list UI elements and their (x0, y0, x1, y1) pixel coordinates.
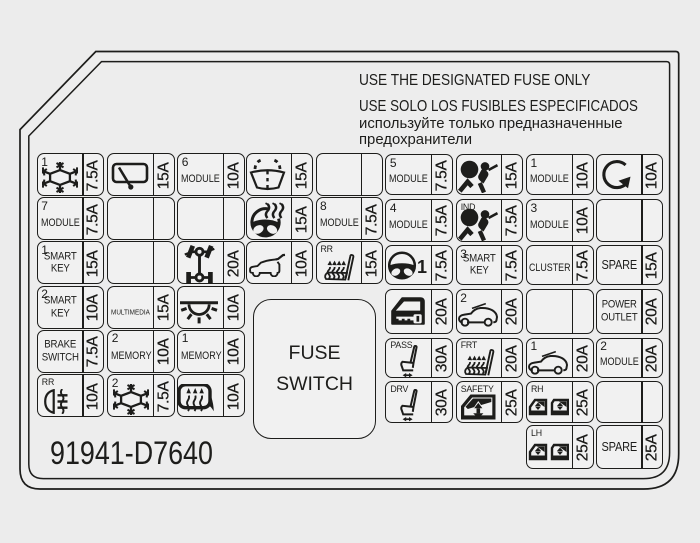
svg-text:1: 1 (417, 257, 427, 277)
